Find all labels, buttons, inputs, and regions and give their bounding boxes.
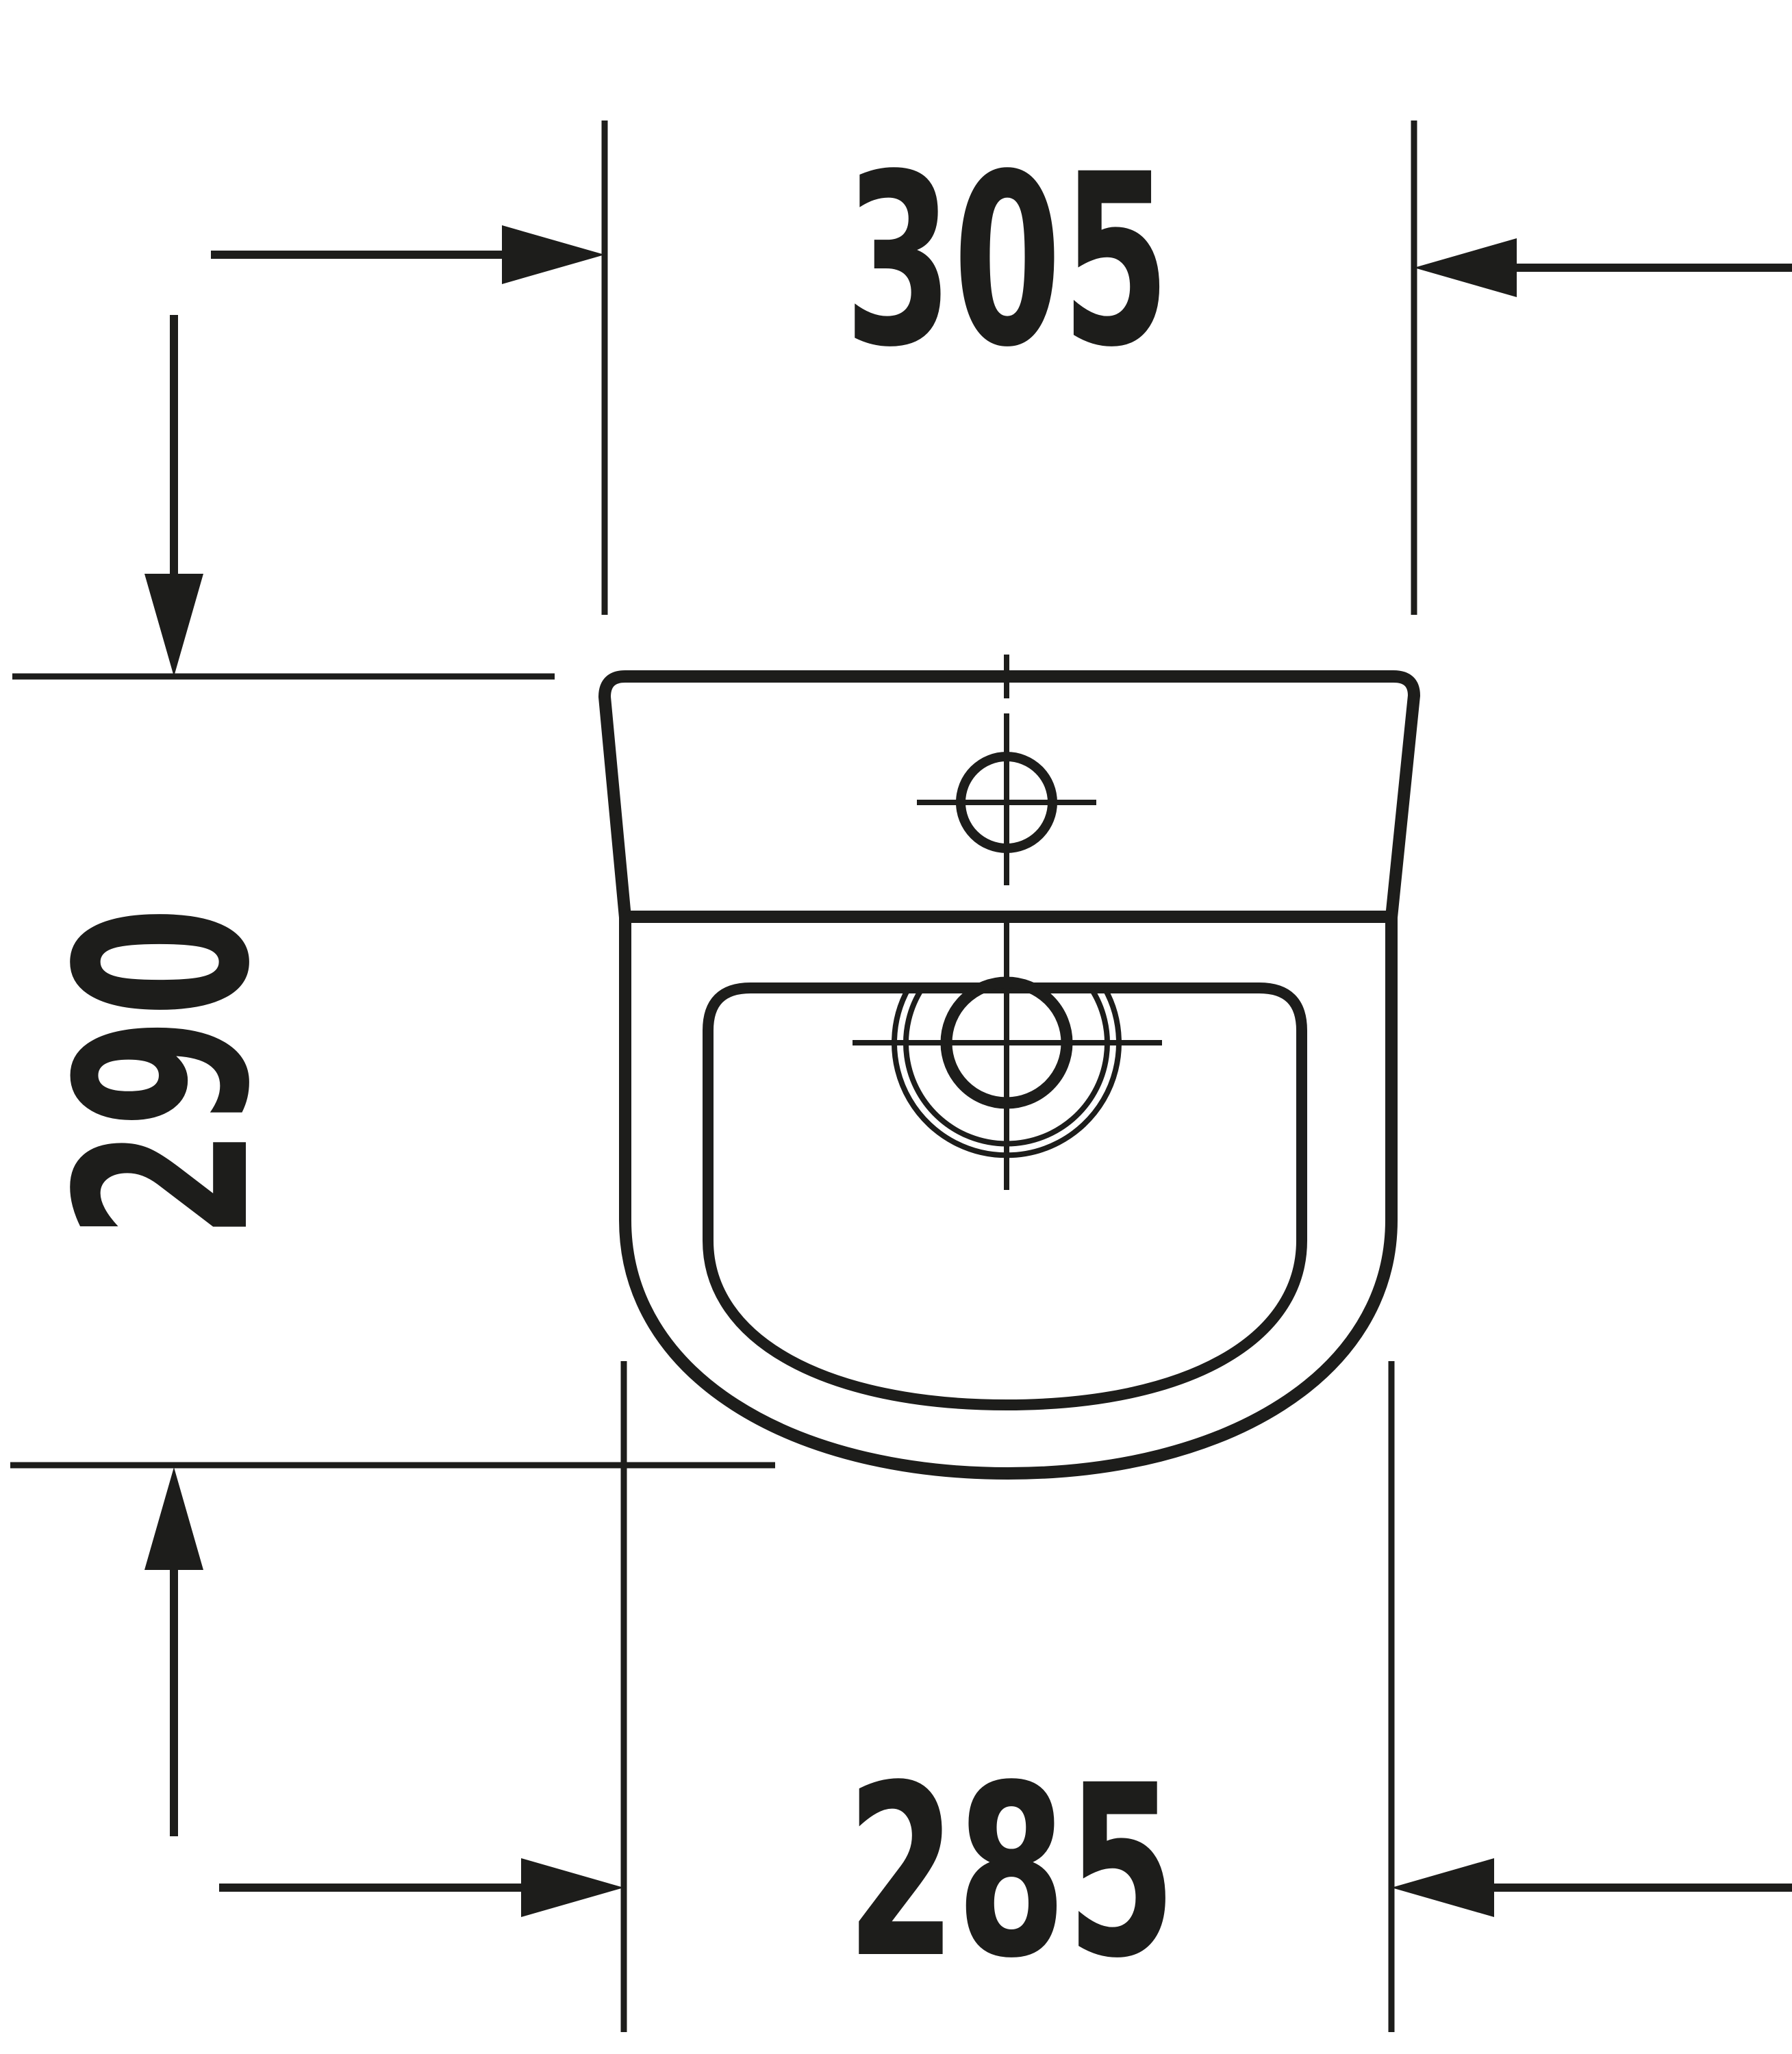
- arrowhead-left-icon: [1391, 1858, 1494, 1917]
- drain-outlet: [853, 917, 1162, 1190]
- arrowhead-up-icon: [144, 1467, 203, 1570]
- arrowhead-left-icon: [1414, 238, 1517, 297]
- arrowhead-right-icon: [502, 225, 605, 284]
- dim-label-bottom-width: 285: [846, 1734, 1176, 2010]
- arrowhead-down-icon: [144, 574, 203, 676]
- dim-label-top-width: 305: [844, 123, 1170, 399]
- technical-drawing-canvas: 305 290 285: [0, 0, 1792, 2054]
- urinal-fixture: [605, 655, 1414, 1473]
- drawing-sheet: 305 290 285: [0, 0, 1792, 2054]
- mounting-hole: [917, 713, 1096, 885]
- dimension-left-height: 290: [10, 315, 775, 1836]
- dimension-bottom-width: 285: [219, 1361, 1792, 2032]
- dimension-top-width: 305: [211, 121, 1792, 615]
- dim-label-left-height: 290: [26, 906, 302, 1239]
- arrowhead-right-icon: [521, 1858, 624, 1917]
